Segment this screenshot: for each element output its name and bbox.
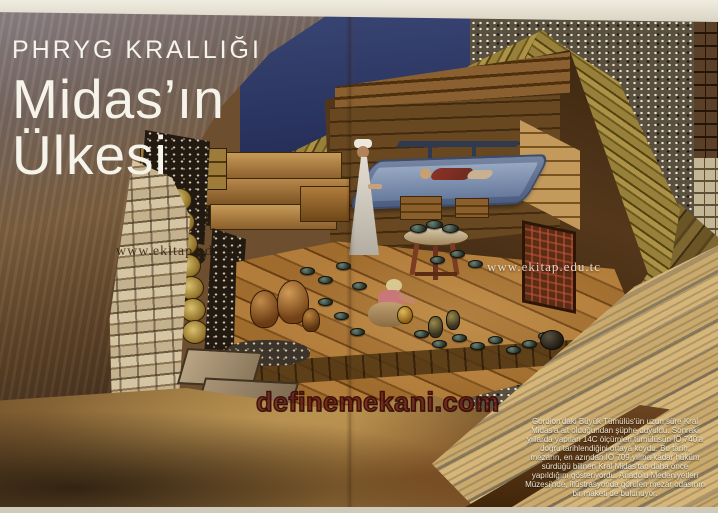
bed-canopy-post: [472, 142, 476, 156]
page-fold: [346, 8, 356, 513]
crib-step-block: [300, 186, 350, 222]
log-end: [182, 320, 208, 344]
watermark-right: www.ekitap.edu.tc: [487, 259, 601, 275]
caption-line: yıllarda yapılan 14C ölçümleri tümülüsün…: [516, 435, 714, 444]
bed-support-block: [400, 196, 442, 220]
bronze-jug: [428, 316, 443, 338]
article-kicker: PHRYG KRALLIĞI: [12, 36, 262, 65]
caption-line: sürdüğü bilinen Kral Midas'tan daha önce: [516, 462, 714, 471]
bronze-bowl: [450, 250, 465, 258]
bronze-bowl: [410, 224, 427, 233]
title-line-1: Midas’ın: [12, 71, 262, 127]
title-line-2: Ülkesi: [12, 127, 262, 183]
bronze-bowl: [442, 224, 459, 233]
king-body-head: [420, 168, 431, 179]
caption-line: Gordion'daki Büyük Tümülüs'ün uzun süre …: [516, 417, 714, 426]
attendant-tray: [368, 184, 382, 189]
pottery-jar: [302, 308, 320, 332]
caption-line: bir maketi de bulunuyor.: [516, 489, 714, 498]
bronze-bowl: [432, 340, 447, 348]
bronze-bowl: [426, 220, 443, 229]
pottery-jar: [250, 290, 279, 328]
caption-line: mezarın, en azından İÖ 709 yılına kadar …: [516, 453, 714, 462]
bronze-cauldron: [540, 330, 564, 350]
caption-line: Müzesi'nde, illüstrasyonda görülen mezar…: [516, 480, 714, 489]
caption-line: doğru tarihlendiğini ortaya koydu. Bu ta…: [516, 444, 714, 453]
bed-support-block: [455, 198, 489, 218]
attendant-head: [357, 146, 369, 158]
bronze-bowl: [430, 256, 445, 264]
funeral-bed: [347, 154, 552, 210]
bronze-bowl: [506, 346, 521, 354]
caption-line: yapıldığını gösteriyordu. Anadolu Medeni…: [516, 471, 714, 480]
bronze-jug: [446, 310, 460, 330]
photo-caption: Gordion'daki Büyük Tümülüs'ün uzun süre …: [516, 417, 714, 498]
bronze-bowl: [318, 298, 333, 306]
bronze-bowl: [470, 342, 485, 350]
bed-canopy-rail: [396, 141, 519, 147]
caption-line: Midas'a ait olduğundan şüphe duyuldu. So…: [516, 426, 714, 435]
brick-wall-right: [694, 8, 718, 158]
bronze-bowl: [414, 330, 429, 338]
site-stamp-watermark: definemekani.com: [256, 387, 500, 418]
table-stretcher: [415, 272, 457, 276]
bronze-bowl: [468, 260, 483, 268]
held-jug: [397, 306, 413, 324]
bronze-bowl: [488, 336, 503, 344]
bronze-bowl: [522, 340, 537, 348]
bronze-bowl: [300, 267, 315, 275]
watermark-left: www.ekitap.edu.tc: [116, 244, 237, 260]
article-title: PHRYG KRALLIĞI Midas’ın Ülkesi: [12, 36, 262, 183]
magazine-spread: PHRYG KRALLIĞI Midas’ın Ülkesi www.ekita…: [0, 0, 718, 513]
bronze-bowl: [452, 334, 467, 342]
bronze-bowl: [318, 276, 333, 284]
scan-border-bottom: [0, 507, 718, 513]
